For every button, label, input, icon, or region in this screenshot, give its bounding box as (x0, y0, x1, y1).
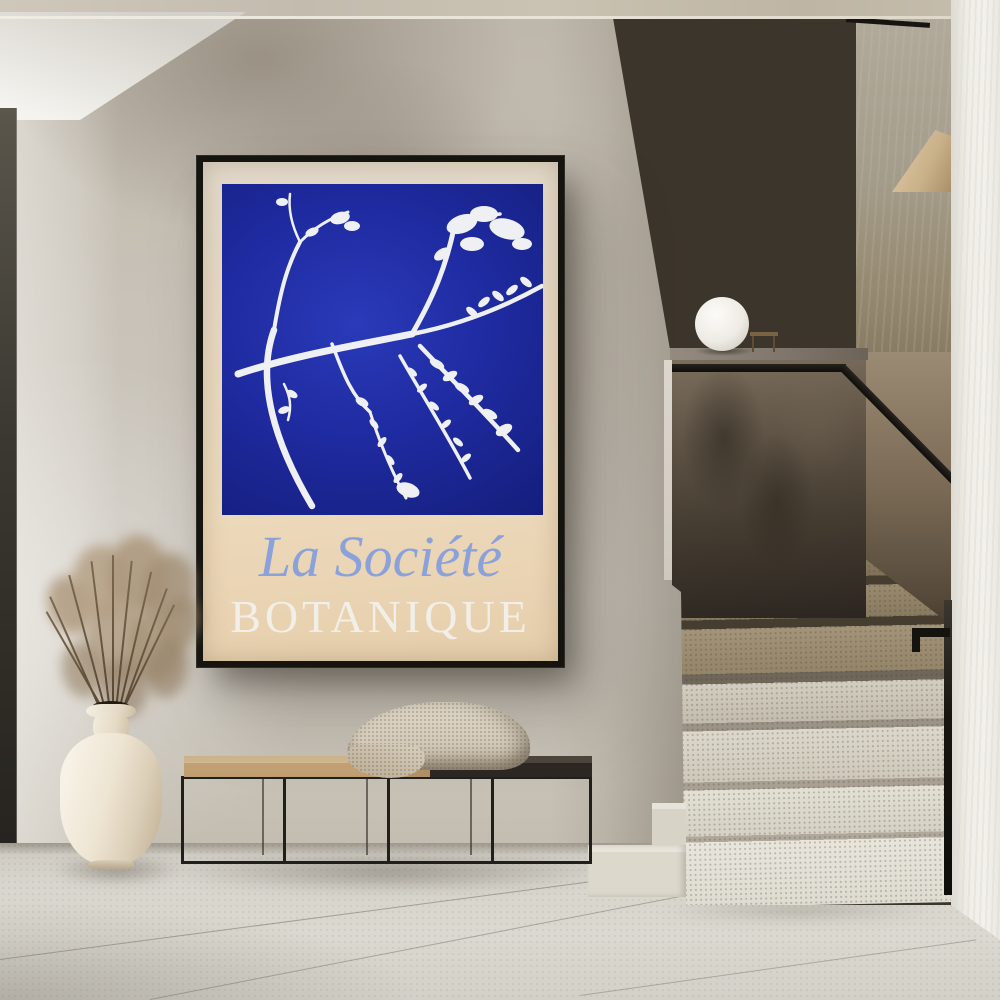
wood-stand-leg (773, 336, 775, 352)
handrail-horizontal (670, 364, 846, 372)
vase-foot (88, 860, 134, 870)
second-step-return (652, 803, 686, 845)
handrail-end-bracket (912, 628, 920, 652)
floor-tile-seam (580, 939, 976, 996)
floor-tile-seam (150, 887, 724, 1000)
poster-frame: La Société BOTANIQUE (196, 155, 565, 668)
poster-art-blue-square (222, 184, 543, 515)
bench-rear-leg (262, 779, 264, 855)
branch-silhouette-art (222, 184, 543, 515)
bench-leg (387, 776, 390, 864)
dark-door-reveal (0, 108, 17, 845)
grass-stem (112, 555, 114, 720)
bench-leg (283, 776, 286, 864)
wood-stand-leg (752, 336, 754, 352)
wall-corner-highlight (664, 360, 672, 580)
bright-side-wall (951, 0, 1000, 1000)
bench-leg (491, 776, 494, 864)
poster: La Société BOTANIQUE (203, 162, 558, 661)
sphere-lamp (695, 297, 749, 351)
poster-title-line1: La Société (203, 528, 558, 586)
handrail-wall-trim (944, 600, 952, 895)
poster-title-line2: BOTANIQUE (203, 592, 558, 643)
ceramic-vase (60, 733, 162, 865)
landing-parapet (668, 360, 866, 618)
bench-rear-leg (470, 779, 472, 855)
interior-scene: La Société BOTANIQUE (0, 0, 1000, 1000)
bottom-step-return (588, 845, 686, 897)
bench-rear-leg (366, 779, 368, 855)
ceiling-edge-line (0, 16, 1000, 19)
